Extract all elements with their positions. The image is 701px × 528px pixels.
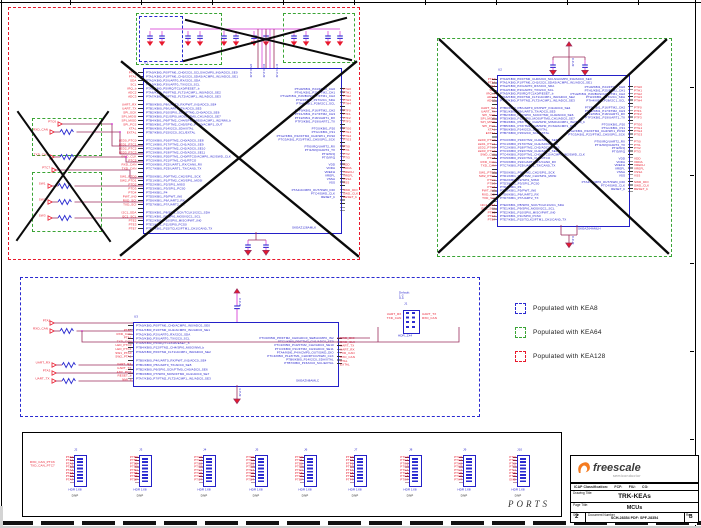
cap-label: 0.1UF <box>571 236 574 245</box>
pin-stubs-right <box>628 86 633 192</box>
mcu-part-number: SKEAZN8AMLC <box>296 379 319 383</box>
connector-part: HDR 1X8 <box>399 488 421 492</box>
connector-dnp: DNP <box>294 494 316 498</box>
schematic-sheet: C5 0.1UF C6 0.1UF C7 4.7UF U1 SKEAZ128AM… <box>0 0 701 528</box>
connector-dnp: DNP <box>399 494 421 498</box>
legend-item: Populated with KEA64 <box>515 327 697 337</box>
connector-ref: J4 <box>203 448 206 452</box>
cell-divider <box>684 512 685 522</box>
net-labels-right: SWD_DIO SWD_CLK UART_TX UART_RX TXD_CAN … <box>340 337 355 367</box>
connector-pins <box>520 458 526 483</box>
cap-label: 4.7UF <box>238 388 241 397</box>
connector-ref: J9 <box>463 448 466 452</box>
net-labels-left: PTA0 PTA1 SDA SCL IRQ_b ADC2 ADC3 UART_R… <box>477 78 495 222</box>
divider <box>571 502 698 503</box>
connector-pins <box>142 458 148 483</box>
drawing-title: TRK-KEAs <box>571 493 698 500</box>
header-part: HDR_2X4 <box>398 334 412 338</box>
legend-item: Populated with KEA128 <box>515 351 697 361</box>
size-value: 2 <box>575 514 578 520</box>
net-labels-left: PTA0 RXD_CAN PTA1 TXD_CAN LED_PTC0 LED_P… <box>115 329 131 382</box>
connector-dnp: DNP <box>64 494 86 498</box>
header-nets-left: UART_RX TXD_CAN <box>386 313 401 321</box>
net-label: UART_RX <box>35 361 50 365</box>
connector-part: HDR 1X8 <box>64 488 86 492</box>
connector-pins <box>77 458 83 483</box>
divider <box>571 482 698 484</box>
net-label: PTC7 <box>42 166 50 170</box>
doc-number-value: SCH-28354 PDF: SPF-28354 <box>587 516 682 520</box>
rev-value: B <box>689 514 693 520</box>
legend-swatch <box>515 303 526 314</box>
sheet-right-border <box>695 0 696 528</box>
connector-pins <box>357 458 363 483</box>
connector-part: HDR 1X8 <box>344 488 366 492</box>
connector-net-labels: PTH0 PTH1 PTH2 PTH3 PTH4 PTH5 PTH6 PTH7 <box>454 456 462 482</box>
connector-net-labels: PTI0 PTI1 PTI2 PTI3 PTI4 PTI5 PTI6 GND <box>509 456 516 482</box>
decap-kea8-box <box>139 16 183 62</box>
connector-net-labels: PTG0 PTG1 PTG2 PTG3 PTG4 PTG5 PTG6 PTG7 <box>400 456 408 482</box>
connector-net-labels: PTA0 PTA1 PTA2 PTA3 PTA4 PTA5 PTA6 PTA7 <box>65 456 73 482</box>
connector-part: HDR 1X8 <box>129 488 151 492</box>
pin-labels-left: PTA0/KBI0_P0/FTM0_CH0/ACMP0_IN0/ADC0_SE0… <box>136 324 211 381</box>
mcu-part-number: SKEAZ64AMLH <box>578 227 601 231</box>
net-label: RXD_CAN <box>33 128 48 132</box>
pin-stubs-left <box>138 72 143 232</box>
mcu-ref: U3 <box>134 315 138 319</box>
connector-net-labels: PTE0 PTE1 PTE2 PTE3 PTE4 PTE5 PTE6 PTE7 <box>295 456 303 482</box>
port-connector: J3 PTB0 PTB1 PTB2 PTB3 PTB4 PTB5 PTB6 PT… <box>99 450 167 514</box>
net-label: SW1 <box>39 182 46 186</box>
connector-pins <box>466 458 472 483</box>
connector-net-labels: PTF0 PTF1 PTF2 PTF3 PTF4 PTF5 PTF6 PTF7 <box>345 456 353 482</box>
mcu-part-number: SKEAZ128AMLK <box>292 226 316 230</box>
brand-name: freescale <box>593 462 641 474</box>
connector-pins <box>412 458 418 483</box>
connector-part: HDR 1X8 <box>453 488 475 492</box>
connector-ref: J5 <box>255 448 258 452</box>
connector-dnp: DNP <box>507 494 529 498</box>
connector-dnp: DNP <box>344 494 366 498</box>
net-labels-left: PTA0 PTA1 SDA SCL IRQ_b ADC2 ADC3 UART_R… <box>118 71 136 231</box>
connector-pins <box>206 458 212 483</box>
connector-net-labels: PTD0 PTD1 PTD2 PTD3 PTD4 PTD5 PTD6 PTD7 <box>246 456 254 482</box>
cell-divider <box>585 512 586 522</box>
title-block: freescale semiconductor ICAP Classificat… <box>570 455 699 523</box>
legend-label: Populated with KEA8 <box>533 305 598 312</box>
connector-dnp: DNP <box>129 494 151 498</box>
pin-labels-right: PTH0/KBI1_P24/FTM2_CH0 PTH1/KBI1_P25/FTM… <box>276 88 335 200</box>
connector-ref: J2 <box>74 448 77 452</box>
net-label: TXD_CAN <box>33 153 48 157</box>
connector-ref: J10 <box>517 448 522 452</box>
net-labels-right: PTH0 PTH1 PTH2 PTH3 PTH4 PTF0 PTF1 PTF2 … <box>634 86 649 191</box>
cap-label: 0.1UF <box>571 58 574 67</box>
net-label: SW2 <box>39 198 46 202</box>
connector-net-labels: PTC0 PTC1 PTC2 PTC3 PTC4 PTC5 PTC6 PTC7 <box>194 456 202 482</box>
connector-pins <box>258 458 264 483</box>
connector-net-labels: PTB0 PTB1 PTB2 PTB3 PTB4 PTB5 PTB6 PTB7 <box>130 456 138 482</box>
connector-dnp: DNP <box>453 494 475 498</box>
connector-ref: J6 <box>304 448 307 452</box>
legend-label: Populated with KEA64 <box>533 329 602 336</box>
sheet-top-border <box>0 2 701 3</box>
connector-part: HDR 1X8 <box>294 488 316 492</box>
pin-labels-left: PTA0/KBI0_P0/FTM0_CH0/I2C0_SCLS/ACMP0_IN… <box>146 71 238 231</box>
header-pins <box>406 312 409 330</box>
net-label: PTC6 <box>48 120 56 124</box>
left-circuit-box-2 <box>32 172 102 232</box>
pin-labels-right: PTH0/KBI1_P24/FTM2_CH0 PTH1/KBI1_P25/FTM… <box>566 86 625 191</box>
sheet-left-border <box>1 0 2 528</box>
legend-swatch <box>515 351 526 362</box>
legend-label: Populated with KEA128 <box>533 353 606 360</box>
net-label: SW3 <box>39 214 46 218</box>
port-connector: J2 PTA0 PTA1 PTA2 PTA3 PTA4 PTA5 PTA6 PT… <box>34 450 102 514</box>
header-pins <box>412 312 415 330</box>
connector-part: HDR 1X8 <box>193 488 215 492</box>
cap-label: 0.1UF <box>238 298 241 307</box>
legend: Populated with KEA8 Populated with KEA64… <box>515 303 697 375</box>
left-circuit-box-1 <box>32 118 102 156</box>
net-label: PTA2 <box>42 319 50 323</box>
page-corner <box>0 506 3 526</box>
header-ref: J1 <box>404 302 407 306</box>
legend-swatch <box>515 327 526 338</box>
net-label: PTA3 <box>42 369 50 373</box>
connector-extra-labels: RXD_CAN_PTC6 TXD_CAN_PTC7 <box>30 461 55 468</box>
net-labels-right: PTH0 PTH1 PTH2 PTH3 PTH4 PTF0 PTF1 PTF2 … <box>343 88 358 200</box>
net-label: UART_TX <box>36 377 50 381</box>
header-note: Default: 1-2 3-4 <box>399 292 410 300</box>
page-title: MCUs <box>571 505 698 511</box>
legend-item: Populated with KEA8 <box>515 303 697 313</box>
header-nets-right: UART_TX RXD_CAN <box>422 313 437 321</box>
net-label: RXD_CAN <box>33 327 48 331</box>
connector-ref: J8 <box>409 448 412 452</box>
connector-ref: J3 <box>139 448 142 452</box>
icap-row: ICAP Classification: FCF: FIU: CO: <box>574 485 649 489</box>
mcu-ref: U2 <box>498 68 502 72</box>
sheet-right-ticks <box>690 0 694 528</box>
connector-part: HDR 1X8 <box>507 488 529 492</box>
port-connector: J10 PTI0 PTI1 PTI2 PTI3 PTI4 PTI5 PTI6 G… <box>477 450 545 514</box>
pin-labels-right: PTC0/KBI0_P8/FTM2_CH0/ADC0_SE8/ACMP0_IN2… <box>260 337 334 366</box>
decap-kea64-box-2 <box>283 13 355 63</box>
connector-pins <box>307 458 313 483</box>
mcu-ref: U1 <box>144 61 148 65</box>
freescale-logo-icon <box>576 460 592 482</box>
connector-ref: J7 <box>354 448 357 452</box>
brand-subtitle: semiconductor <box>613 474 641 478</box>
connector-dnp: DNP <box>193 494 215 498</box>
